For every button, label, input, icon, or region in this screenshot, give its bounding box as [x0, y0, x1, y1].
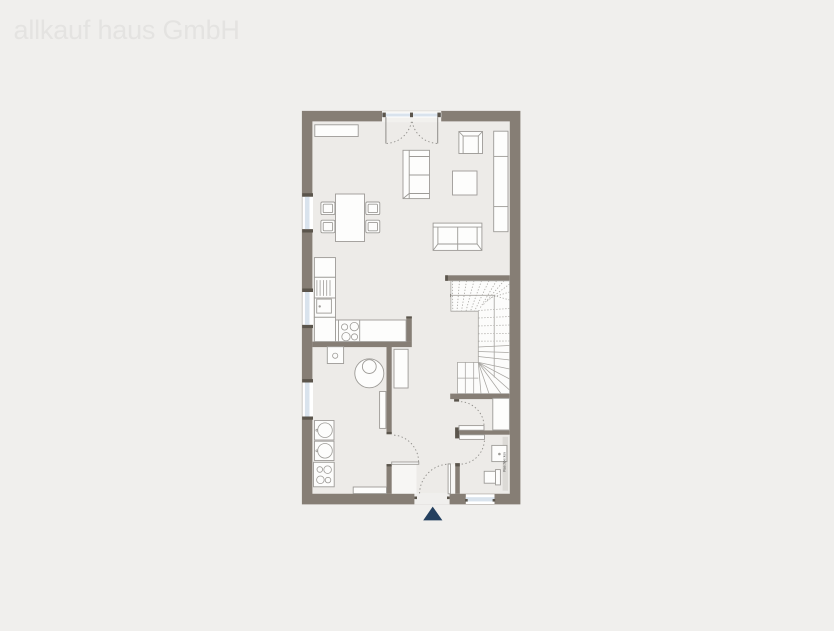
svg-text:Waschbecken: Waschbecken	[503, 452, 507, 472]
svg-text:allkauf haus GmbH: allkauf haus GmbH	[14, 15, 240, 45]
